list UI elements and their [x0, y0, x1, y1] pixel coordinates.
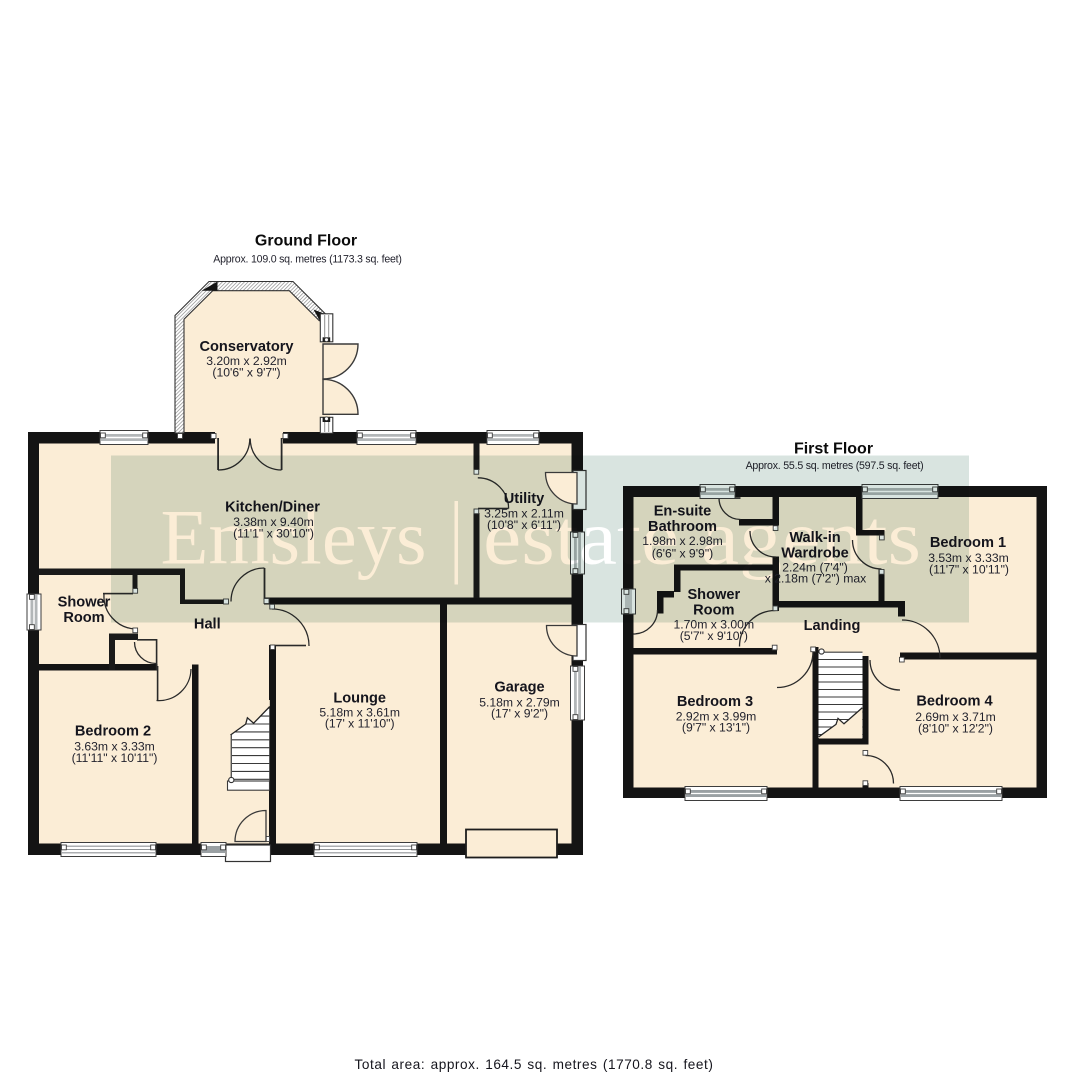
svg-text:(10'6" x 9'7"): (10'6" x 9'7") — [212, 365, 280, 379]
svg-text:(17' x 9'2"): (17' x 9'2") — [491, 707, 548, 721]
svg-text:Garage: Garage — [494, 680, 544, 696]
svg-text:Bedroom 4: Bedroom 4 — [916, 694, 993, 710]
svg-text:Room: Room — [63, 610, 104, 626]
svg-text:First Floor: First Floor — [794, 441, 873, 458]
svg-text:Bedroom 2: Bedroom 2 — [75, 723, 151, 739]
svg-text:Conservatory: Conservatory — [199, 339, 294, 355]
svg-text:Approx. 109.0 sq. metres (1173: Approx. 109.0 sq. metres (1173.3 sq. fee… — [213, 254, 401, 266]
svg-text:Ground Floor: Ground Floor — [255, 233, 357, 250]
svg-text:(9'7" x 13'1"): (9'7" x 13'1") — [682, 721, 750, 735]
svg-text:Total area: approx. 164.5 sq.: Total area: approx. 164.5 sq. metres (17… — [355, 1057, 714, 1072]
svg-text:(8'10" x 12'2"): (8'10" x 12'2") — [918, 721, 993, 735]
svg-text:Bedroom 3: Bedroom 3 — [677, 694, 753, 710]
svg-text:(5'7" x 9'10"): (5'7" x 9'10") — [680, 629, 748, 643]
svg-text:(11'11" x 10'11"): (11'11" x 10'11") — [72, 751, 158, 765]
svg-text:Lounge: Lounge — [333, 691, 386, 707]
svg-text:Shower: Shower — [58, 595, 111, 611]
svg-text:(17' x 11'10"): (17' x 11'10") — [325, 717, 395, 731]
